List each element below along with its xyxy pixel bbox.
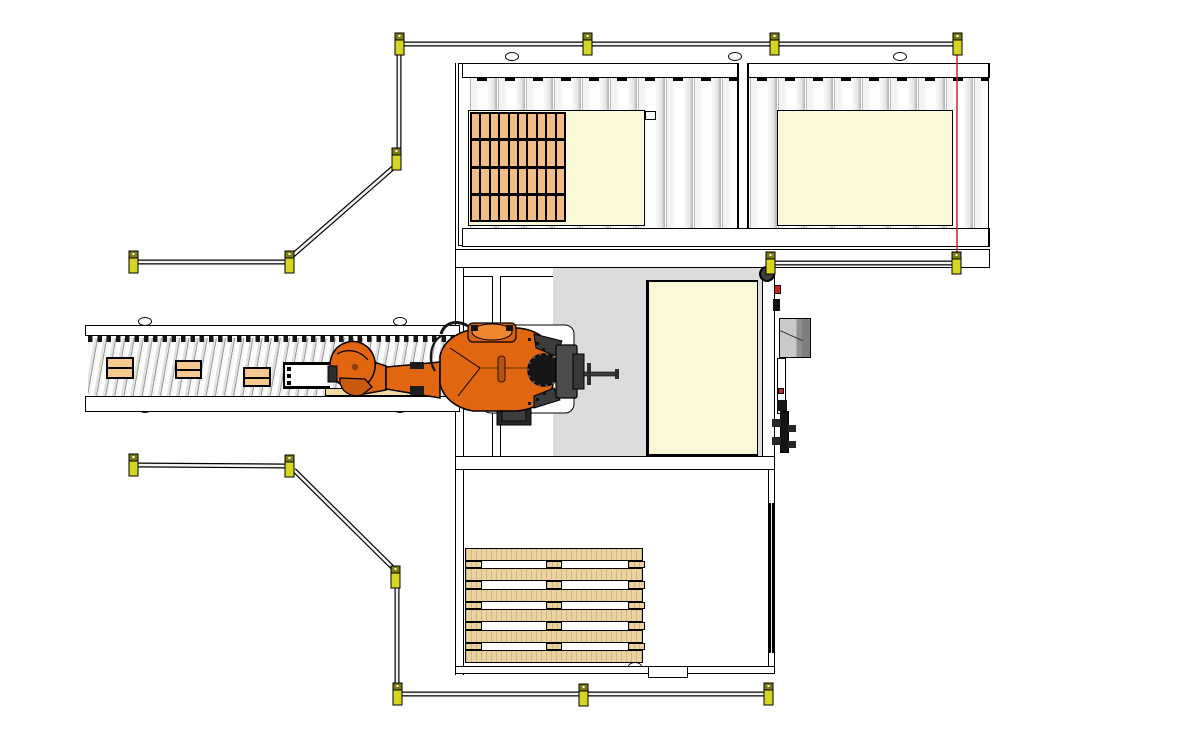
fence-post-dot	[289, 457, 291, 459]
carton-slat	[500, 114, 507, 138]
carton-slat	[510, 141, 517, 165]
fence-post	[953, 33, 962, 55]
fence-post	[583, 33, 592, 55]
carton-slat	[481, 114, 488, 138]
pallet-gap	[465, 581, 643, 589]
carton-stack	[470, 112, 566, 222]
valve-tab	[788, 441, 796, 448]
fence-post-dot	[768, 685, 770, 687]
fence-post-cap	[583, 33, 592, 40]
fence-post-cap	[391, 566, 400, 573]
fence-post	[285, 251, 294, 273]
pallet-plank	[465, 568, 643, 581]
fence-rail	[294, 470, 393, 568]
fence-post-cap	[129, 251, 138, 258]
pallet-stringer-block	[628, 602, 645, 610]
fence-post-dot	[133, 456, 135, 458]
pallet-stringer-block	[546, 622, 562, 630]
outfeed-conveyor	[455, 60, 990, 262]
carton-slat	[472, 169, 479, 193]
pallet-stringer-block	[546, 643, 562, 651]
pallet-plank	[465, 589, 643, 602]
fence-rail-core	[294, 470, 393, 568]
fence-post-dot	[395, 568, 397, 570]
outfeed-top-rail	[462, 63, 990, 78]
fence-post	[392, 148, 401, 170]
carton-slat	[481, 141, 488, 165]
carton-slat	[491, 169, 498, 193]
fence-post-dot	[133, 253, 135, 255]
carton-slat	[557, 114, 564, 138]
cell-mid-south-band	[455, 456, 775, 470]
carton-seam	[177, 369, 200, 371]
fence-post-cap	[770, 33, 779, 40]
cell-south-step	[648, 666, 688, 678]
fence-post-cap	[764, 683, 773, 690]
fence-rail	[138, 465, 285, 466]
carton-slat	[547, 196, 554, 220]
pallet-plank	[465, 630, 643, 643]
carton-slat	[472, 114, 479, 138]
pallet-stringer-block	[465, 602, 482, 610]
cell-inner-top-line	[463, 276, 553, 277]
sensor-dot	[287, 374, 291, 378]
carton-slat	[557, 196, 564, 220]
cell-east-inner-rail	[769, 503, 774, 653]
fence-post-dot	[957, 35, 959, 37]
black-knob	[777, 400, 787, 411]
carton-slat	[528, 114, 535, 138]
pallet-plank	[465, 609, 643, 622]
carton-slat	[510, 169, 517, 193]
pallet-stringer-block	[628, 581, 645, 589]
fence-post	[395, 33, 404, 55]
pallet-stringer-block	[628, 561, 645, 569]
pallet-stringer-block	[628, 622, 645, 630]
fence-post	[391, 566, 400, 588]
pallet-stringer-block	[546, 561, 562, 569]
fence-post-dot	[396, 150, 398, 152]
pallet-slot-empty	[777, 110, 953, 226]
outfeed-divider	[737, 63, 749, 228]
fence-post	[579, 684, 588, 706]
fence-post-dot	[583, 686, 585, 688]
carton-slat	[519, 114, 526, 138]
pallet-plank	[465, 650, 643, 663]
carton-seam	[245, 377, 269, 379]
pallet-gap	[465, 622, 643, 630]
fence-post	[129, 454, 138, 476]
fence-post-dot	[289, 253, 291, 255]
fence-post-cap	[285, 251, 294, 258]
drive-motor	[759, 266, 775, 282]
fence-post-cap	[392, 148, 401, 155]
carton-slat	[500, 169, 507, 193]
carton-slat	[472, 141, 479, 165]
fence-post	[770, 33, 779, 55]
valve-tab	[772, 419, 781, 427]
fence-post-cap	[395, 33, 404, 40]
carton-slat	[491, 141, 498, 165]
carton-on-conveyor	[243, 367, 271, 387]
carton-seam	[108, 367, 132, 369]
pallet-stringer-block	[628, 643, 645, 651]
carton-slat	[510, 196, 517, 220]
fence-post-cap	[579, 684, 588, 691]
pallet-stringer-block	[546, 581, 562, 589]
chute-seam	[779, 330, 803, 341]
palletizing-robot	[322, 316, 622, 428]
carton-slat	[538, 196, 545, 220]
carton-slat	[547, 141, 554, 165]
fence-post-cap	[953, 33, 962, 40]
carton-slat	[538, 169, 545, 193]
fence-rail	[292, 167, 394, 256]
outfeed-end-line-right	[988, 63, 989, 247]
valve-tab	[788, 425, 796, 432]
fence-rail-core	[292, 167, 394, 256]
fence-post-cap	[285, 455, 294, 462]
red-button	[778, 388, 784, 394]
pallet-stringer-block	[546, 602, 562, 610]
carton-on-conveyor	[106, 357, 134, 379]
pallet-gap	[465, 561, 643, 569]
pallet-slot-latch	[645, 111, 656, 120]
fence-post-cap	[129, 454, 138, 461]
carton-slat	[481, 169, 488, 193]
carton-slat	[528, 169, 535, 193]
empty-wooden-pallet	[465, 548, 643, 663]
carton-slat	[538, 114, 545, 138]
palletizing-cell-layout: Top-down CAD layout of a robotic palleti…	[0, 0, 1181, 737]
fence-rail-core	[138, 465, 285, 466]
carton-slat	[491, 196, 498, 220]
pallet-plank	[465, 548, 643, 561]
fence-post-dot	[587, 35, 589, 37]
fence-post-dot	[399, 35, 401, 37]
carton-slat	[481, 196, 488, 220]
carton-slat	[472, 196, 479, 220]
pallet-stringer-block	[465, 643, 482, 651]
carton-slat	[547, 114, 554, 138]
carton-on-conveyor	[175, 360, 202, 379]
valve-assembly	[772, 411, 796, 453]
valve-tab	[772, 437, 781, 445]
carton-slat	[538, 141, 545, 165]
junction-box	[773, 299, 780, 311]
carton-slat	[519, 169, 526, 193]
sensor-dot	[287, 381, 291, 385]
carton-slat	[519, 141, 526, 165]
carton-slat	[528, 141, 535, 165]
carton-slat	[491, 114, 498, 138]
pallet-stringer-block	[465, 561, 482, 569]
fence-post	[764, 683, 773, 705]
pallet-gap	[465, 602, 643, 610]
fence-post	[129, 251, 138, 273]
carton-slat	[519, 196, 526, 220]
red-indicator-knob	[774, 285, 781, 294]
pallet-stringer-block	[465, 581, 482, 589]
carton-slat	[557, 169, 564, 193]
sensor-dot	[287, 367, 291, 371]
fence-post	[393, 683, 402, 705]
carton-slat	[557, 141, 564, 165]
carton-slat	[528, 196, 535, 220]
fence-post-dot	[774, 35, 776, 37]
pallet-gap	[465, 643, 643, 651]
fence-post-dot	[397, 685, 399, 687]
fence-post-cap	[393, 683, 402, 690]
fence-post	[285, 455, 294, 477]
outfeed-bottom-rail	[462, 228, 990, 247]
cell-south-wall	[455, 666, 775, 674]
carton-slat	[510, 114, 517, 138]
robot-side-pallet	[646, 280, 758, 457]
pallet-stringer-block	[465, 622, 482, 630]
chute-device	[779, 318, 811, 358]
carton-slat	[500, 141, 507, 165]
carton-slat	[500, 196, 507, 220]
carton-slat	[547, 169, 554, 193]
